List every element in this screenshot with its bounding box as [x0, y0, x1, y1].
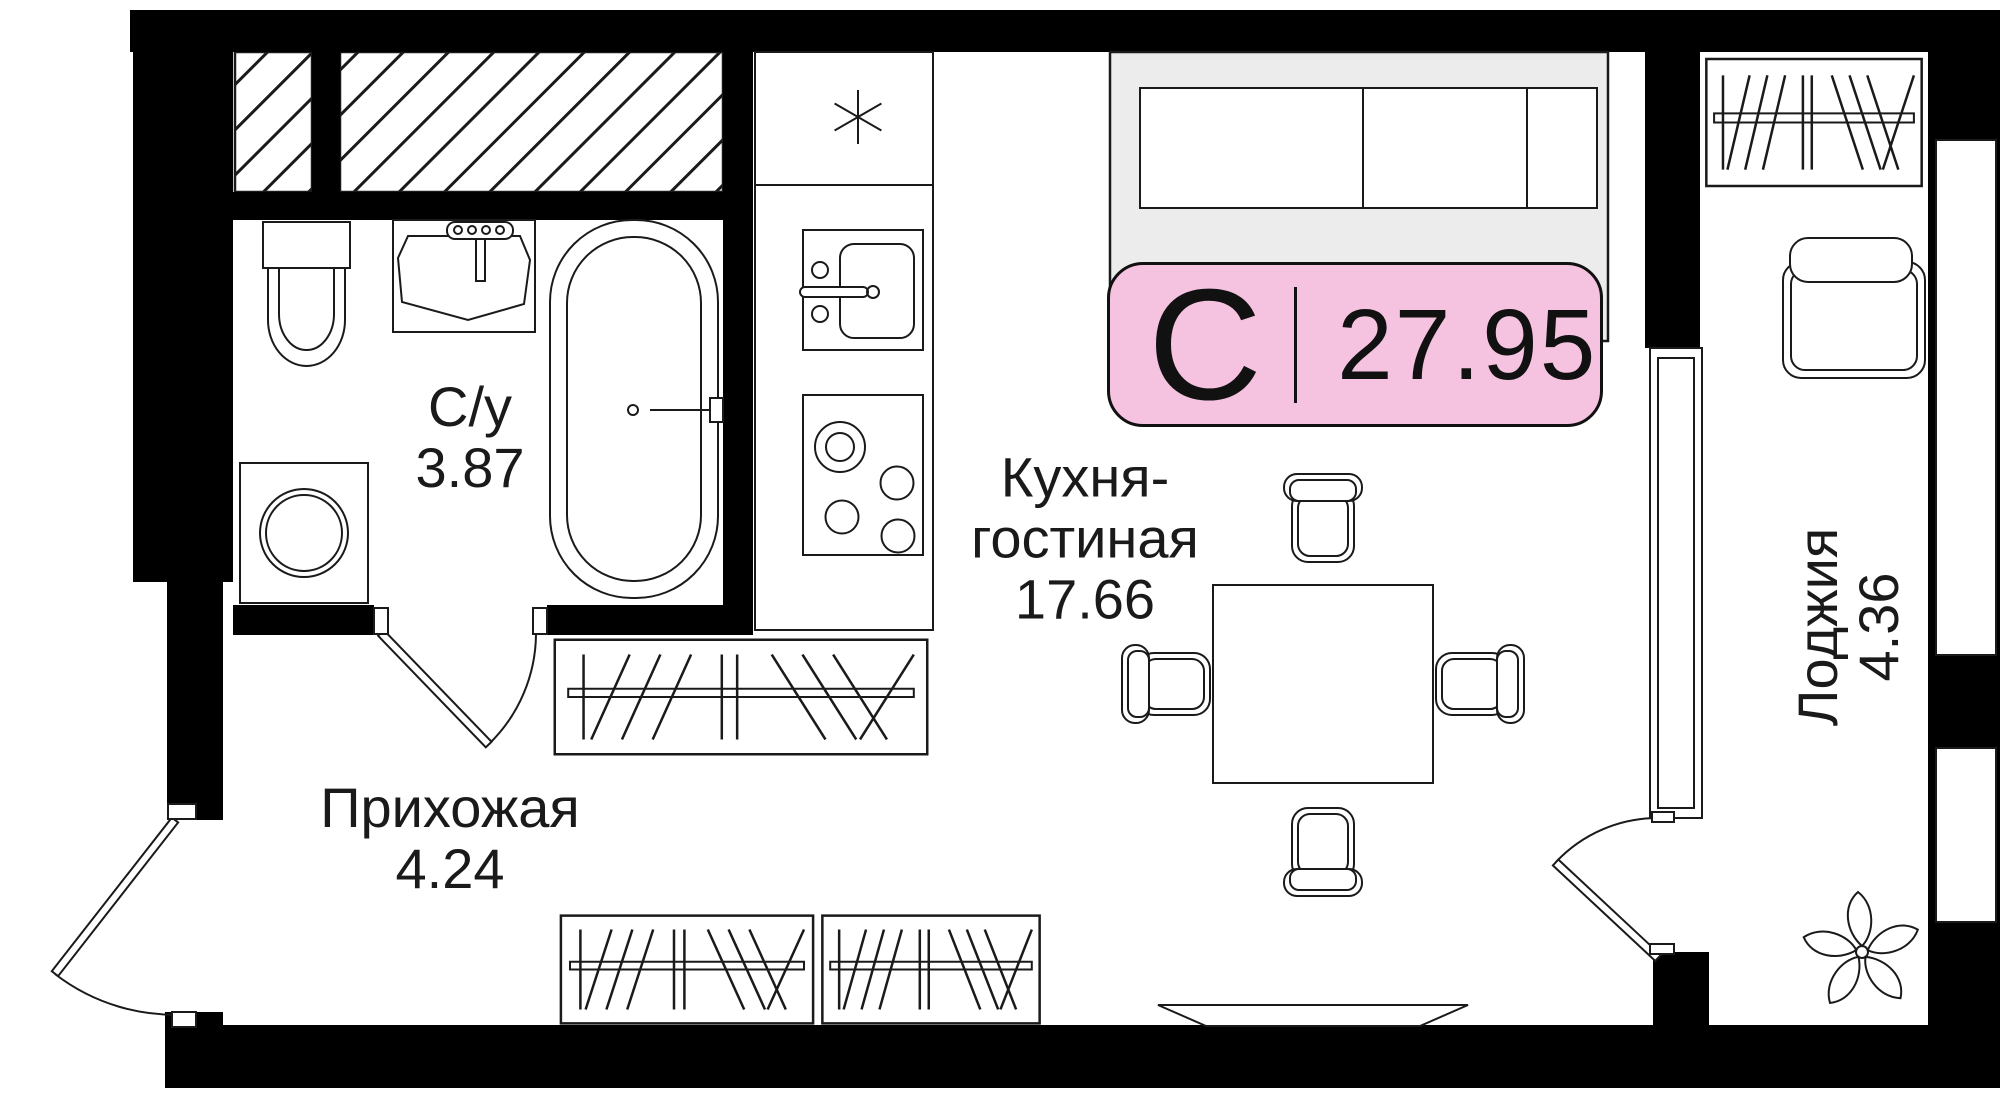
room-name-line2: гостиная	[971, 507, 1199, 568]
loggia-partition-window	[1650, 348, 1702, 818]
room-area: 3.87	[416, 437, 525, 498]
bathroom-sink	[393, 220, 535, 332]
loggia-window-right-1	[1936, 140, 1996, 655]
room-label-bathroom: С/у 3.87	[416, 376, 525, 498]
room-label-kitchen-living: Кухня- гостиная 17.66	[971, 446, 1199, 629]
chair-bottom	[1284, 808, 1362, 896]
wardrobe-under-bathroom	[555, 640, 927, 754]
kitchen-sink	[800, 230, 923, 350]
plant	[1801, 892, 1922, 1009]
dining-table	[1213, 585, 1433, 783]
room-label-hallway: Прихожая 4.24	[320, 777, 580, 899]
armchair	[1783, 238, 1925, 378]
washing-machine	[240, 463, 368, 603]
room-name: Прихожая	[320, 777, 580, 838]
entry-door	[52, 804, 196, 1027]
unit-type-letter: С	[1148, 266, 1262, 424]
closet-hatched-large	[340, 52, 723, 192]
wardrobe-bottom-right	[822, 916, 1039, 1024]
wardrobe-bottom-left	[561, 916, 813, 1024]
unit-total-area: 27.95	[1337, 295, 1597, 395]
room-label-loggia: Лоджия 4.36	[1787, 528, 1909, 726]
badge-divider	[1294, 287, 1297, 403]
room-name: Лоджия	[1787, 528, 1848, 726]
room-area: 4.24	[320, 838, 580, 899]
loggia-window-right-2	[1936, 748, 1996, 922]
room-area: 17.66	[971, 569, 1199, 630]
tv-console	[1158, 1005, 1468, 1026]
room-area: 4.36	[1848, 528, 1909, 726]
closet-hatched-small	[235, 52, 312, 192]
bathroom-door	[374, 608, 547, 747]
chair-left	[1122, 645, 1210, 723]
bathtub	[550, 220, 723, 598]
chair-top	[1284, 474, 1362, 562]
wardrobe-loggia	[1706, 59, 1921, 186]
loggia-door	[1553, 812, 1674, 961]
room-name-line1: Кухня-	[971, 446, 1199, 507]
cooktop	[803, 395, 923, 555]
unit-area-badge: С 27.95	[1107, 262, 1603, 427]
chair-right	[1436, 645, 1524, 723]
floor-plan: С/у 3.87 Кухня- гостиная 17.66 Прихожая …	[0, 0, 2000, 1103]
toilet	[263, 222, 350, 366]
room-name: С/у	[416, 376, 525, 437]
